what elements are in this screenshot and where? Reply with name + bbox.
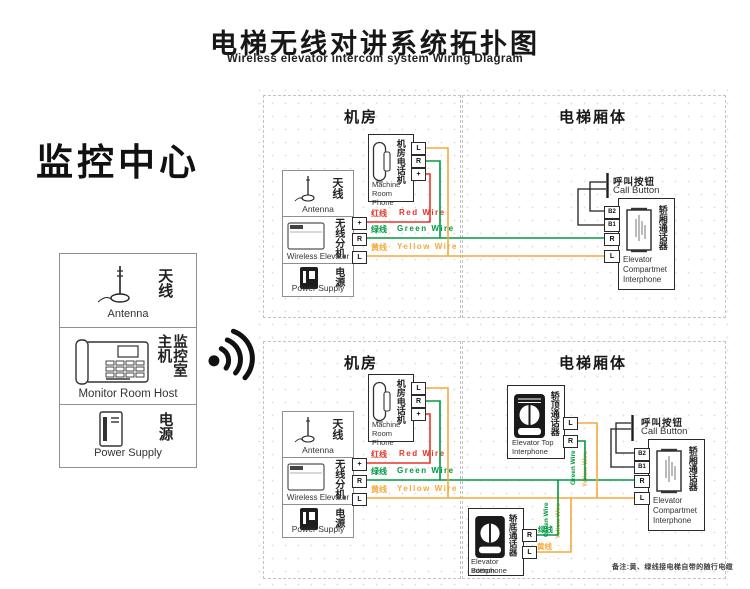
row1-machine-room-phone-box: 机房电话机 Machine Room Phone	[368, 134, 414, 202]
row2-compartment-terminal-b1: B1	[634, 461, 650, 474]
row2-call-button-label-en: Call Button	[641, 426, 687, 437]
row2-station-wireless-en: Wireless Elevator	[283, 493, 353, 502]
row1-station-power-en: Power Supply	[283, 283, 353, 293]
row1-green-wire-label-en: Green Wire	[397, 224, 455, 233]
row1-call-button-label-en: Call Button	[613, 185, 659, 196]
row2-top-interphone-terminal-l: L	[563, 417, 578, 430]
row2-bottom-yellow-label-zh: 黄线	[537, 541, 552, 552]
row2-bottom-interphone-terminal-r: R	[522, 529, 537, 542]
row1-compartment-label-en1: Elevator	[623, 255, 652, 264]
row1-green-wire-label-zh: 绿线	[371, 224, 387, 235]
row2-red-wire-label-en: Red Wire	[399, 449, 446, 458]
row1-station-wireless-en: Wireless Elevator	[283, 252, 353, 261]
row2-yellow-wire-label-zh: 黄线	[371, 484, 387, 495]
row2-machine-room-title: 机房	[263, 352, 459, 373]
row1-station-terminal-plus: +	[352, 217, 367, 230]
row2-green-wire-label-en: Green Wire	[397, 466, 455, 475]
row2-compartment-label-zh: 轿厢通话器	[687, 446, 697, 498]
row2-phone-terminal-l: L	[411, 382, 426, 395]
antenna-icon	[94, 264, 136, 308]
row2-green-wire-label-zh: 绿线	[371, 466, 387, 477]
row2-compartment-terminal-r: R	[634, 475, 650, 488]
speaker-interphone-icon	[513, 393, 546, 439]
row1-station-box: 天线 Antenna 无线分机 Wireless Elevator 电源 Pow…	[282, 170, 354, 297]
row2-station-terminal-r: R	[352, 475, 367, 488]
row1-phone-label-en2: Room Phone	[372, 189, 413, 207]
row1-station-antenna-en: Antenna	[283, 204, 353, 214]
wireless-signal-icon	[202, 326, 256, 384]
row2-station-antenna-en: Antenna	[283, 445, 353, 455]
row2-bottom-interphone-box: 轿底通话器 Elevator Bottom Interphone	[468, 508, 524, 576]
row2-compartment-terminal-b2: B2	[634, 448, 650, 461]
row1-machine-room-title: 机房	[263, 106, 459, 127]
desk-phone-icon	[72, 334, 152, 388]
monitor-antenna-label-zh: 天线	[156, 268, 172, 312]
row2-phone-terminal-r: R	[411, 395, 426, 408]
row2-car-body-title: 电梯厢体	[462, 352, 724, 373]
row2-compartment-label-en3: Interphone	[653, 516, 691, 525]
row1-compartment-terminal-b2: B2	[604, 206, 620, 219]
row1-phone-terminal-l: L	[411, 142, 426, 155]
row2-compartment-interphone-box: 轿厢通话器 Elevator Compartmet Interphone	[648, 439, 705, 531]
compartment-interphone-icon	[625, 207, 653, 253]
row1-car-body-title: 电梯厢体	[462, 106, 724, 127]
row2-yellow-wire-vertical-label-bottom: Yellow Wire	[555, 505, 562, 539]
row1-phone-label-en1: Machine	[372, 180, 400, 189]
region-row1-car-body	[462, 95, 726, 318]
row2-top-interphone-terminal-r: R	[563, 435, 578, 448]
row1-compartment-label-zh: 轿厢通话器	[657, 205, 667, 257]
antenna-icon	[293, 416, 317, 446]
row1-red-wire-label-zh: 红线	[371, 208, 387, 219]
monitor-divider-2	[60, 404, 196, 405]
wireless-unit-icon	[287, 463, 325, 491]
monitor-power-label-zh: 电源	[156, 412, 172, 446]
row2-phone-label-en1: Machine	[372, 420, 400, 429]
row2-station-divider-2	[283, 504, 353, 505]
wiring-diagram-page: 电梯无线对讲系统拓扑图 Wireless elevator intercom s…	[0, 0, 750, 589]
row2-bottom-interphone-label-zh: 轿底通话器	[508, 514, 517, 562]
wireless-unit-icon	[287, 222, 325, 250]
row2-top-interphone-label-zh: 轿顶通话器	[549, 391, 559, 441]
row1-compartment-label-en2: Compartmet	[623, 265, 667, 274]
row1-compartment-terminal-l: L	[604, 250, 620, 263]
row2-green-wire-vertical-label-top: Green Wire	[570, 445, 577, 485]
row1-station-divider-2	[283, 263, 353, 264]
row1-phone-terminal-r: R	[411, 155, 426, 168]
monitor-antenna-label-en: Antenna	[60, 308, 196, 320]
row2-top-interphone-label-en2: Interphone	[512, 447, 548, 456]
speaker-interphone-icon	[474, 515, 506, 559]
row1-station-terminal-r: R	[352, 233, 367, 246]
monitor-divider-1	[60, 327, 196, 328]
row2-top-interphone-box: 轿顶通话器 Elevator Top Interphone	[507, 385, 565, 459]
monitor-center-title: 监控中心	[36, 132, 200, 186]
row2-yellow-wire-vertical-label-top: Yellow Wire	[582, 447, 589, 487]
row2-bottom-interphone-label-en2: Interphone	[471, 566, 507, 575]
row2-compartment-label-en2: Compartmet	[653, 506, 697, 515]
row2-red-wire-label-zh: 红线	[371, 449, 387, 460]
antenna-icon	[293, 175, 317, 205]
row2-station-power-en: Power Supply	[283, 524, 353, 534]
page-subtitle: Wireless elevator intercom system Wiring…	[0, 53, 750, 65]
handset-icon	[372, 141, 393, 185]
row2-bottom-green-label-zh: 绿线	[538, 524, 553, 535]
row1-yellow-wire-label-en: Yellow Wire	[397, 242, 458, 251]
row2-phone-terminal-plus: +	[411, 408, 426, 421]
row2-compartment-terminal-l: L	[634, 492, 650, 505]
monitor-center-box: 天线 Antenna 监控室主机 Monitor Room Host 电源 Po…	[59, 253, 197, 468]
monitor-power-label-en: Power Supply	[60, 447, 196, 459]
row1-compartment-interphone-box: 轿厢通话器 Elevator Compartmet Interphone	[618, 198, 675, 290]
row2-yellow-wire-label-en: Yellow Wire	[397, 484, 458, 493]
row2-phone-label-en2: Room Phone	[372, 429, 413, 447]
monitor-host-label-en: Monitor Room Host	[60, 388, 196, 400]
row2-top-interphone-label-en1: Elevator Top	[512, 438, 554, 447]
row2-bottom-interphone-terminal-l: L	[522, 546, 537, 559]
row2-station-divider-1	[283, 457, 353, 458]
row2-station-terminal-l: L	[352, 493, 367, 506]
row1-compartment-label-en3: Interphone	[623, 275, 661, 284]
power-supply-icon	[96, 410, 126, 448]
row2-station-terminal-plus: +	[352, 458, 367, 471]
row2-machine-room-phone-box: 机房电话机 Machine Room Phone	[368, 374, 414, 442]
row2-compartment-label-en1: Elevator	[653, 496, 682, 505]
row2-station-box: 天线 Antenna 无线分机 Wireless Elevator 电源 Pow…	[282, 411, 354, 538]
handset-icon	[372, 381, 393, 425]
row1-compartment-terminal-b1: B1	[604, 219, 620, 232]
row1-yellow-wire-label-zh: 黄线	[371, 242, 387, 253]
compartment-interphone-icon	[655, 448, 683, 494]
row1-compartment-terminal-r: R	[604, 233, 620, 246]
row1-station-terminal-l: L	[352, 251, 367, 264]
row1-phone-terminal-plus: +	[411, 168, 426, 181]
monitor-host-label-zh: 监控室主机	[152, 334, 186, 386]
footnote: 备注:黄、绿线接电梯自带的随行电缆	[612, 562, 733, 572]
row1-station-divider-1	[283, 216, 353, 217]
row1-red-wire-label-en: Red Wire	[399, 208, 446, 217]
